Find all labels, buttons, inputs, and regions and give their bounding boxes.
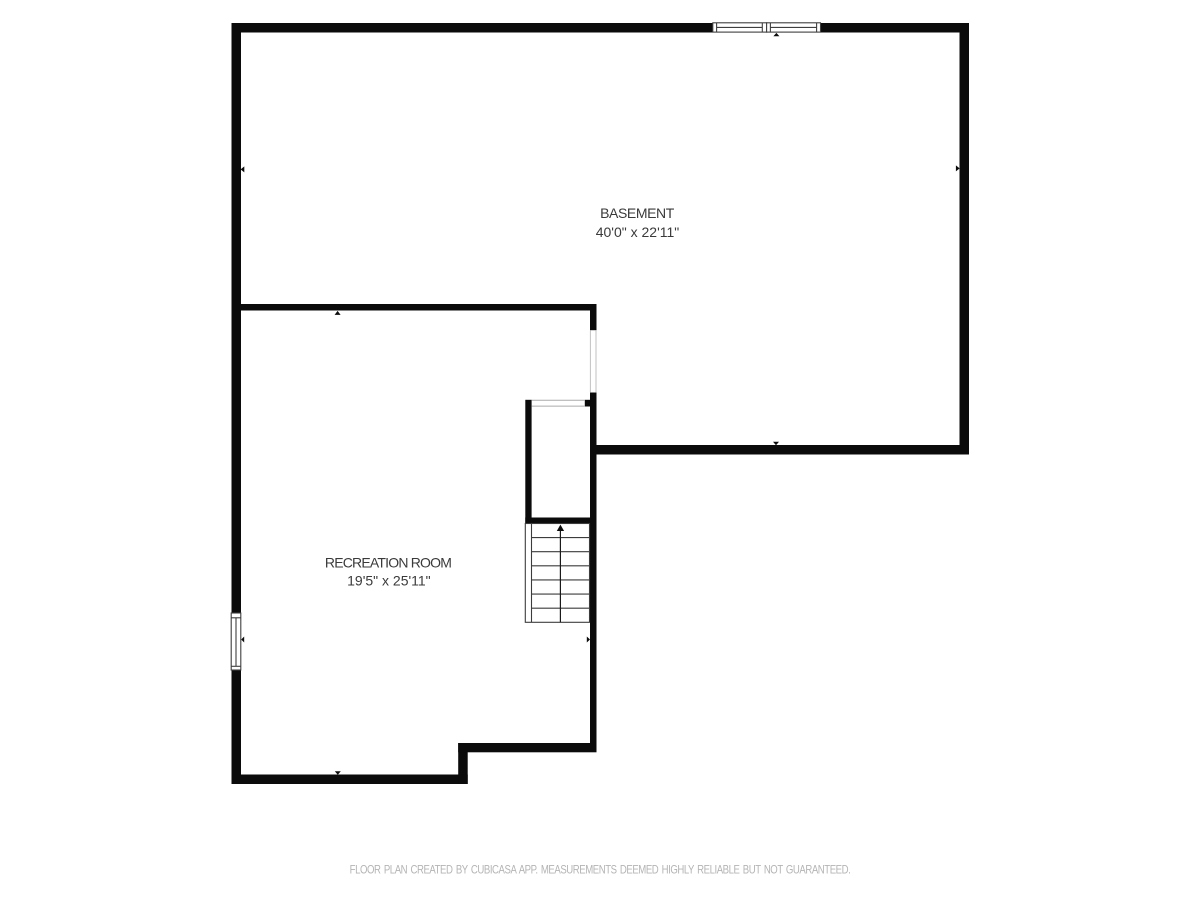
svg-text:FLOOR PLAN CREATED BY CUBICASA: FLOOR PLAN CREATED BY CUBICASA APP. MEAS… <box>350 863 851 876</box>
svg-text:19'5" x 25'11": 19'5" x 25'11" <box>347 573 431 589</box>
svg-text:RECREATION ROOM: RECREATION ROOM <box>325 555 451 571</box>
svg-text:BASEMENT: BASEMENT <box>600 205 675 221</box>
svg-text:40'0" x 22'11": 40'0" x 22'11" <box>596 224 680 240</box>
